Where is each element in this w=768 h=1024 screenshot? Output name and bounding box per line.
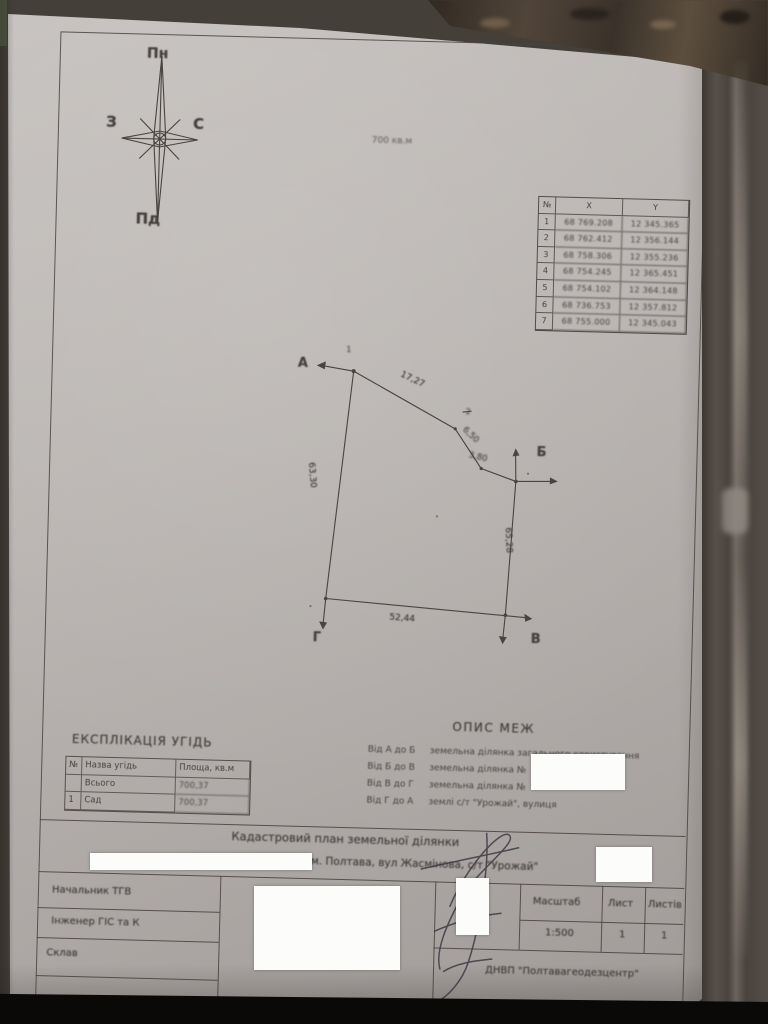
point-b-label: Б	[536, 445, 546, 460]
coord-cell: 2	[538, 230, 555, 247]
sheet-label: Лист	[608, 898, 634, 910]
coord-cell: 68 754.102	[554, 280, 621, 298]
expl-cell: Сад	[81, 792, 175, 812]
compass-north-label: Пн	[147, 46, 169, 63]
parcel-diagram	[276, 337, 584, 665]
sheets-value: 1	[661, 930, 668, 941]
expl-header: Площа, кв.м	[176, 760, 250, 779]
expl-cell: 700,37	[176, 777, 250, 796]
length-left-label: 63,30	[306, 462, 318, 488]
compass-west-label: З	[106, 113, 117, 131]
coord-cell: 68 769.208	[555, 214, 622, 232]
length-bottom-label: 52,44	[389, 613, 415, 625]
coord-cell: 6	[536, 296, 553, 313]
scale-value: 1:500	[545, 927, 574, 939]
coord-cell: 12 365.451	[621, 266, 687, 284]
coord-cell: 4	[537, 263, 554, 280]
boundary-range: Від А до Б	[368, 745, 420, 756]
compass-rose-icon	[99, 49, 224, 232]
area-note: 700 кв.м	[372, 136, 413, 147]
background-left-sliver	[0, 0, 7, 46]
vertex-1-label: 1	[346, 345, 351, 354]
boundary-range: Від Г до А	[366, 796, 418, 807]
boundaries-heading: ОПИС МЕЖ	[452, 720, 535, 736]
plan-content: Пн Пд З С 700 кв.м № X Y 1 68 769.208 12…	[0, 0, 768, 1024]
vertex-2-label: 2	[466, 407, 471, 416]
coord-header-n: №	[539, 197, 556, 214]
expl-header: №	[66, 757, 82, 775]
coord-cell: 68 755.000	[553, 314, 620, 332]
redaction-box	[596, 847, 652, 882]
photo-of-cadastral-plan: Пн Пд З С 700 кв.м № X Y 1 68 769.208 12…	[0, 0, 768, 1024]
coord-cell: 68 754.245	[554, 264, 621, 282]
coord-cell: 12 355.236	[622, 249, 688, 267]
redaction-box	[90, 853, 312, 870]
role-1-label: Начальник ТГВ	[52, 884, 132, 897]
coord-cell: 12 357.812	[620, 299, 686, 317]
redaction-box	[456, 878, 489, 935]
coord-header-x: X	[556, 197, 623, 215]
coord-cell: 12 345.043	[620, 315, 686, 333]
role-3-label: Склав	[46, 947, 78, 959]
compass-south-label: Пд	[135, 209, 160, 228]
coord-cell: 68 758.306	[555, 247, 622, 265]
coord-cell: 12 364.148	[621, 282, 687, 300]
compass-east-label: С	[193, 115, 204, 133]
length-right-label: 65,28	[503, 527, 514, 553]
coord-cell: 3	[538, 247, 555, 264]
point-g-label: Г	[312, 630, 321, 645]
expl-cell: 1	[65, 792, 81, 810]
coord-cell: 68 736.753	[553, 297, 620, 315]
coord-cell: 68 762.412	[555, 231, 622, 249]
coord-cell: 1	[538, 214, 555, 231]
expl-cell	[66, 774, 82, 792]
explication-table: № Назва угідь Площа, кв.м Всього 700,37 …	[64, 756, 251, 815]
point-a-label: А	[298, 356, 308, 371]
coord-cell: 12 356.144	[622, 232, 688, 250]
boundary-range: Від Б до В	[367, 762, 419, 773]
boundary-range: Від В до Г	[367, 779, 419, 790]
redaction-box	[531, 754, 625, 790]
sheet-value: 1	[619, 929, 626, 940]
coord-cell: 7	[536, 313, 553, 330]
point-v-label: В	[531, 632, 541, 647]
background-highlight-blob	[722, 488, 748, 534]
sheets-label: Листів	[648, 899, 682, 911]
expl-cell: 700,37	[175, 795, 249, 814]
coord-cell: 12 345.365	[622, 216, 688, 234]
coord-header-y: Y	[623, 199, 689, 217]
coordinate-table: № X Y 1 68 769.208 12 345.365 2 68 762.4…	[535, 196, 690, 335]
role-2-label: Інженер ГІС та К	[51, 915, 140, 928]
redaction-box	[254, 886, 400, 970]
coord-cell: 5	[537, 280, 554, 297]
